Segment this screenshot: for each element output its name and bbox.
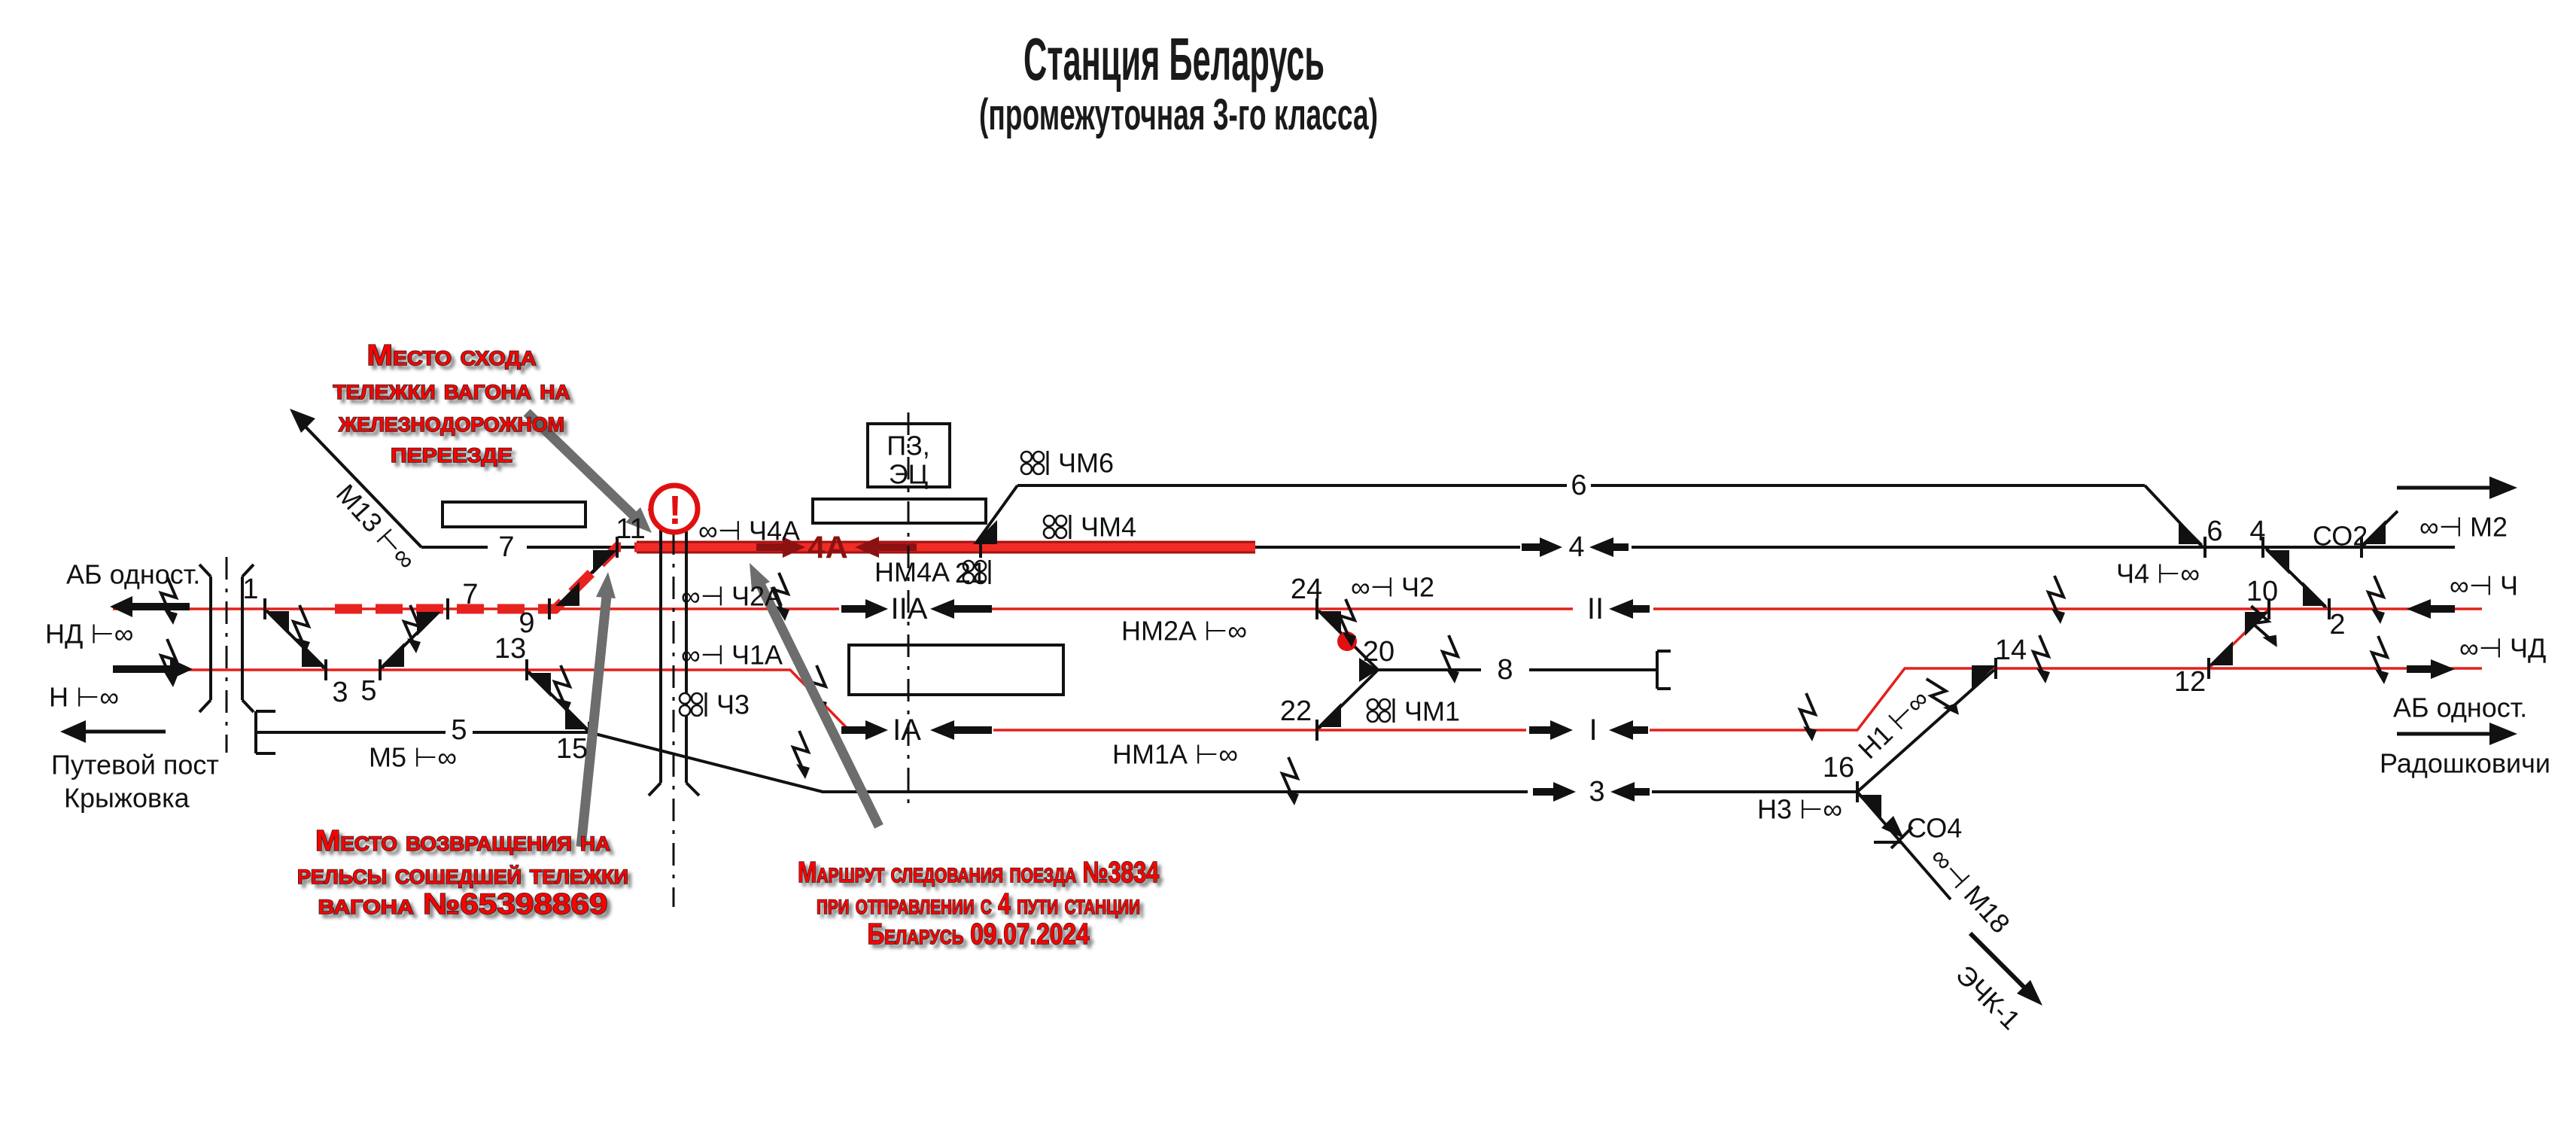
note-line: рельсы сошедшей тележки (297, 858, 628, 890)
platform-west (443, 502, 585, 527)
sw-1: 1 (242, 574, 258, 605)
track-4-label: 4 (1568, 531, 1584, 563)
signal-nm2a: НМ2А ⊢∞ (1121, 616, 1247, 647)
sw-20: 20 (1363, 636, 1394, 668)
sw-10: 10 (2246, 576, 2278, 607)
track-8-label: 8 (1497, 654, 1513, 686)
sw-5: 5 (360, 675, 376, 707)
signal-m13: М13 ⊢∞ (330, 478, 422, 575)
signal-n3: Н3 ⊢∞ (1757, 794, 1842, 825)
derail-co2: СО2 (2313, 521, 2368, 552)
rerail-site-note: Место возвращения на рельсы сошедшей тел… (297, 825, 628, 921)
track-IIa-label: IIА (891, 592, 928, 625)
track-5-label: 5 (451, 714, 467, 746)
note-line: Маршрут следования поезда №3834 (798, 857, 1159, 889)
sw-24: 24 (1291, 574, 1322, 605)
signal-nm4a: НМ4А (874, 557, 950, 588)
derail-site-note: Место схода тележки вагона на железнодор… (333, 339, 570, 469)
note-line: железнодорожном (338, 406, 564, 438)
left-dest-line2: Крыжовка (64, 783, 190, 814)
rerail-pointer-shaft (581, 596, 607, 847)
track-7-label: 7 (498, 531, 514, 563)
track-I-label: I (1589, 714, 1597, 747)
derail-co4: СО4 (1907, 813, 1962, 844)
derail-alert: ! (651, 485, 1357, 651)
sw-4: 4 (2249, 516, 2265, 547)
post-box-line2: ЭЦ (889, 459, 929, 490)
signal-m2: ∞⊣ М2 (2419, 512, 2508, 543)
sw-21: 21 (955, 558, 987, 589)
track-II-label: II (1587, 592, 1604, 625)
sw-13: 13 (494, 633, 526, 665)
sw-7: 7 (462, 579, 478, 610)
note-line: Беларусь 09.07.2024 (868, 918, 1090, 951)
signal-n: Н ⊢∞ (49, 682, 119, 713)
track-8-bumper (1657, 651, 1671, 689)
echk-label: ЭЧК-1 (1950, 959, 2027, 1036)
dwarf-signal-icon (1044, 515, 1070, 539)
dwarf-signal-icon (680, 692, 706, 717)
signal-chm4: ЧМ4 (1081, 512, 1136, 543)
signal-m18: ∞⊣ М18 (1924, 841, 2016, 939)
sw-11: 11 (616, 513, 645, 545)
sw-3: 3 (332, 677, 348, 708)
track-6-label: 6 (1571, 470, 1586, 501)
diagram-canvas: ! (0, 0, 2576, 1129)
sw-14: 14 (1995, 634, 2027, 666)
station-building (849, 645, 1063, 695)
sw-16: 16 (1823, 752, 1854, 784)
signal-ch1a: ∞⊣ Ч1А (681, 640, 783, 671)
signal-ch: ∞⊣ Ч (2450, 571, 2518, 601)
signal-ch3: Ч3 (716, 689, 750, 720)
page-title: Станция Беларусь (1023, 26, 1324, 93)
left-dest-line1: Путевой пост (51, 750, 219, 781)
sw-22: 22 (1280, 695, 1312, 727)
signal-ch2: ∞⊣ Ч2 (1351, 572, 1434, 603)
note-line: переезде (391, 437, 512, 469)
text-labels: Станция Беларусь (промежуточная 3-го кла… (45, 26, 2550, 1036)
alert-glyph: ! (668, 488, 682, 533)
signal-ch4a: ∞⊣ Ч4А (698, 516, 800, 546)
signal-chm6: ЧМ6 (1058, 448, 1114, 479)
page-subtitle: (промежуточная 3-го класса) (979, 90, 1378, 139)
sw-6: 6 (2206, 516, 2222, 547)
annotation-arrows (527, 412, 879, 847)
dwarf-signal-icon (1021, 451, 1048, 475)
ab-block-right: АБ одност. (2393, 692, 2527, 723)
signal-chm1: ЧМ1 (1404, 696, 1460, 727)
sw-15: 15 (556, 733, 588, 765)
dwarf-signal-icon (1367, 698, 1394, 723)
platform-center (813, 499, 986, 523)
m13-exit-arrow (290, 409, 315, 433)
signal-m5: М5 ⊢∞ (369, 742, 457, 773)
signal-n1: Н1 ⊢∞ (1852, 683, 1935, 765)
rerail-pointer-head (596, 572, 616, 598)
signal-ch4: Ч4 ⊢∞ (2116, 558, 2200, 589)
note-line: Место возвращения на (315, 825, 610, 857)
post-box-line1: ПЗ, (887, 431, 930, 461)
note-line: вагона №65398869 (318, 888, 608, 921)
track-3-label: 3 (1589, 776, 1604, 808)
ab-block-left: АБ одност. (66, 559, 200, 590)
sw-2: 2 (2329, 609, 2345, 641)
route-arrow-left-head (855, 537, 879, 558)
track-4a-label: 4А (807, 530, 848, 565)
note-line: тележки вагона на (333, 373, 570, 406)
sw-12: 12 (2174, 666, 2206, 698)
track-Ia-label: IА (893, 714, 921, 747)
route-note: Маршрут следования поезда №3834 при отпр… (798, 857, 1159, 951)
note-line: при отправлении с 4 пути станции (817, 888, 1140, 921)
right-dest: Радошковичи (2380, 748, 2550, 779)
note-line: Место схода (367, 339, 537, 372)
route-dashed (335, 547, 637, 609)
signal-nd: НД ⊢∞ (45, 619, 133, 650)
signal-chd: ∞⊣ ЧД (2459, 633, 2546, 664)
station-diagram: ! (0, 0, 2576, 1129)
signal-nm1a: НМ1А ⊢∞ (1112, 739, 1238, 770)
signal-ch2a: ∞⊣ Ч2А (681, 581, 783, 612)
